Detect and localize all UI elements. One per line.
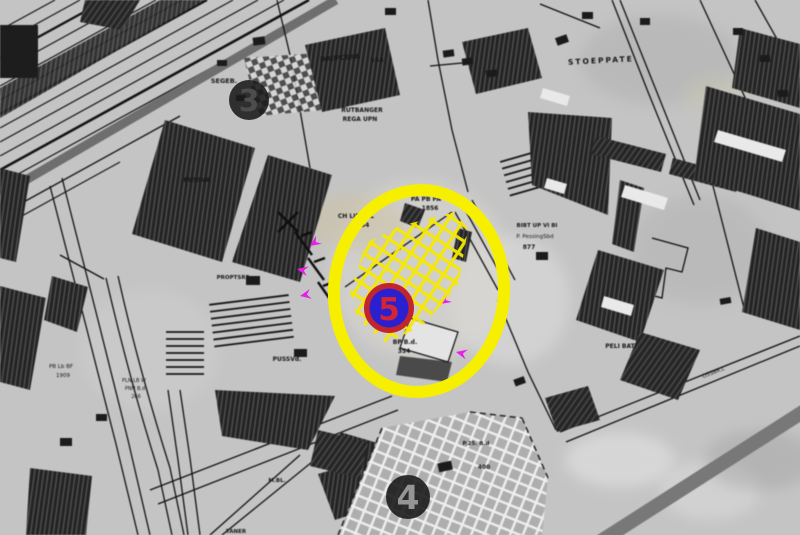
map-label: REGA UPN: [343, 116, 378, 123]
map-label: 554: [370, 56, 384, 64]
map-label: BIBT UP VI BI: [517, 223, 558, 229]
map-label: PB Lb BF: [49, 364, 73, 370]
map-label: BP B.d.: [393, 339, 418, 346]
svg-text:3: 3: [239, 84, 260, 119]
map-label: 400: [478, 464, 491, 471]
site-marker-5: 5: [367, 286, 411, 330]
map-label: PROPTSRE: [217, 275, 250, 281]
map-label: P. PessingSbd: [516, 234, 553, 240]
map-label: 1856: [422, 205, 439, 212]
svg-text:4: 4: [397, 478, 420, 517]
map-image: SEGEB.DRUPCERA554RUTBANGERREGA UPNPA PB …: [0, 0, 800, 535]
area-marker-3: 3: [229, 80, 269, 120]
area-marker-4: 4: [386, 475, 430, 519]
map-label: P.25. B.d: [463, 441, 490, 447]
scanned-map-screenshot: SEGEB.DRUPCERA554RUTBANGERREGA UPNPA PB …: [0, 0, 800, 535]
map-label: PNN B.d: [125, 386, 145, 392]
map-label: PUSSVd.: [273, 356, 302, 363]
map-label: 266: [131, 394, 141, 400]
map-label: PUSSVA: [184, 177, 211, 184]
map-label: 877: [523, 244, 536, 251]
map-label: PLN LB W: [122, 378, 146, 384]
map-label: M.BL.: [268, 478, 285, 484]
map-label: 1909: [56, 373, 70, 379]
map-label: RUTBANGER: [341, 107, 383, 114]
map-label: 354: [398, 348, 411, 355]
svg-text:5: 5: [378, 292, 400, 328]
map-label: SEGEB.: [211, 77, 237, 85]
map-label: TANER: [226, 529, 247, 535]
map-label: PELI BAT: [605, 343, 635, 350]
